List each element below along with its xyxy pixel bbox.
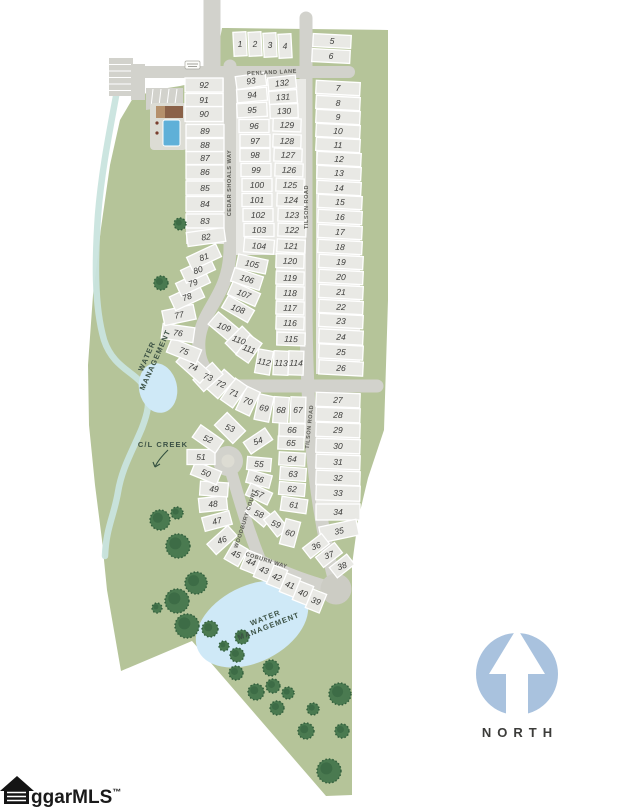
plat-map-image: 1234567891011121314151617181920212223242…	[0, 0, 644, 812]
lot-number: 21	[335, 287, 346, 298]
lot-number: 86	[200, 167, 210, 177]
lot-number: 116	[283, 318, 297, 328]
tree-icon	[153, 513, 163, 523]
house-logo-icon	[0, 776, 34, 804]
lot-number: 26	[335, 363, 346, 374]
lot-number: 94	[247, 89, 258, 100]
lot-number: 128	[280, 136, 295, 146]
tree-icon	[337, 726, 344, 733]
lot-number: 132	[274, 77, 289, 88]
lot-number: 125	[283, 180, 298, 190]
lot-number: 33	[333, 488, 343, 498]
lot-number: 84	[200, 199, 210, 209]
tree-icon	[173, 509, 179, 515]
lot-number: 95	[247, 105, 257, 115]
lot-number: 5	[329, 36, 335, 46]
lot-number: 66	[287, 425, 297, 435]
lot-number: 62	[287, 484, 298, 495]
swimming-pool	[163, 120, 180, 146]
tree-icon	[169, 537, 181, 549]
tree-icon	[320, 762, 332, 774]
lot-number: 83	[200, 216, 210, 226]
lot-number: 98	[250, 150, 260, 160]
lot-number: 7	[335, 83, 341, 93]
lot-number: 19	[336, 257, 346, 267]
lot-number: 103	[252, 225, 266, 235]
lot-number: 28	[332, 410, 343, 420]
lot-number: 97	[250, 136, 260, 146]
pool-umbrella-icon	[155, 121, 158, 124]
lot-number: 88	[200, 140, 210, 150]
parking-drive	[131, 64, 145, 100]
lot-number: 124	[284, 195, 299, 205]
tree-icon	[176, 220, 182, 226]
lot-number: 87	[200, 153, 210, 163]
lot-number: 6	[328, 51, 334, 61]
lot-number: 55	[254, 459, 265, 470]
lot-number: 104	[252, 240, 267, 251]
lot-number: 122	[285, 225, 300, 235]
lot-number: 22	[335, 302, 346, 313]
lot-number: 13	[334, 168, 344, 178]
lot-number: 131	[276, 91, 291, 102]
lot-number: 20	[335, 272, 346, 283]
lot-number: 96	[249, 121, 259, 131]
tree-icon	[309, 705, 315, 711]
cul-de-sac-island	[222, 455, 235, 468]
tree-icon	[300, 725, 308, 733]
lot-number: 121	[284, 241, 299, 252]
lot-number: 29	[332, 425, 343, 435]
lot-number: 126	[282, 165, 297, 175]
tree-icon	[153, 604, 158, 609]
lot-number: 51	[196, 452, 206, 462]
lot-number: 120	[283, 256, 298, 266]
lot-number: 115	[284, 334, 298, 344]
lot-number: 3	[267, 40, 273, 50]
pool-umbrella-icon	[155, 131, 158, 134]
lot-number: 30	[333, 441, 343, 451]
lot-number: 127	[281, 150, 296, 160]
lot-number: 32	[333, 473, 343, 483]
lot-number: 63	[288, 469, 298, 480]
tree-icon	[168, 592, 180, 604]
tree-icon	[265, 662, 273, 670]
tree-icon	[220, 642, 225, 647]
lot-number: 68	[276, 405, 286, 416]
tree-icon	[268, 681, 275, 688]
lot-number: 24	[335, 332, 346, 343]
lot-number: 1	[237, 39, 243, 49]
lot-number: 12	[334, 154, 344, 164]
entrance-sign	[185, 61, 200, 69]
tree-icon	[332, 686, 343, 697]
lot-number: 130	[277, 106, 292, 116]
lot-number: 90	[199, 109, 209, 119]
tree-icon	[204, 623, 212, 631]
lot-number: 65	[286, 438, 296, 448]
lot-number: 9	[335, 112, 341, 122]
tree-icon	[231, 668, 238, 675]
lot-number: 118	[283, 288, 297, 298]
lot-number: 119	[283, 273, 297, 283]
lot-number: 17	[335, 227, 345, 237]
lot-number: 82	[201, 231, 212, 242]
lot-number: 117	[283, 303, 297, 313]
lot-number: 49	[209, 484, 219, 495]
lot-number: 16	[335, 212, 345, 222]
lot-number: 91	[199, 95, 209, 105]
lot-number: 18	[335, 242, 345, 252]
tree-icon	[284, 689, 290, 695]
tree-icon	[178, 617, 190, 629]
lot-number: 89	[200, 126, 210, 136]
lot-number: 129	[280, 120, 295, 130]
lot-number: 2	[251, 39, 258, 49]
lot-number: 76	[173, 327, 184, 338]
tree-icon	[232, 650, 239, 657]
plat-map-page: 1234567891011121314151617181920212223242…	[0, 0, 644, 812]
lot-number: 123	[285, 210, 300, 220]
lot-number: 10	[333, 126, 343, 136]
tree-icon	[156, 278, 163, 285]
north-label: NORTH	[482, 725, 558, 740]
watermark-text: ggarMLS™	[31, 787, 121, 808]
lot-number: 100	[250, 180, 264, 190]
lot-number: 11	[333, 140, 343, 150]
lot-number: 102	[251, 210, 265, 220]
lot-number: 92	[199, 80, 209, 90]
lot-number: 27	[332, 395, 343, 405]
lot-number: 67	[293, 405, 303, 415]
area-label: C/L CREEK	[138, 440, 188, 449]
lot-number: 14	[334, 183, 344, 193]
lot-number: 15	[335, 197, 345, 207]
lot-number: 113	[274, 358, 288, 369]
lot-number: 64	[287, 454, 297, 464]
lot-number: 85	[200, 183, 210, 193]
lot-number: 8	[335, 98, 341, 108]
lot-number: 34	[333, 507, 343, 517]
lot-number: 31	[333, 457, 343, 467]
clubhouse-building-wing	[156, 106, 165, 118]
lot-number: 61	[289, 499, 300, 510]
lot-number: 4	[282, 41, 288, 51]
lot-number: 48	[208, 498, 219, 509]
lot-number: 23	[335, 316, 346, 327]
north-compass: NORTH	[476, 628, 558, 740]
lot-number: 114	[289, 358, 303, 368]
lot-number: 101	[250, 195, 264, 205]
lot-number: 99	[251, 165, 261, 175]
tree-icon	[250, 686, 258, 694]
tree-icon	[188, 575, 199, 586]
street-name-label: TILSON ROAD	[304, 185, 310, 229]
mls-watermark: ggarMLS™	[0, 776, 121, 808]
lot-number: 25	[335, 347, 346, 358]
tree-icon	[272, 703, 279, 710]
street-name-label: CEDAR SHOALS WAY	[227, 150, 233, 217]
